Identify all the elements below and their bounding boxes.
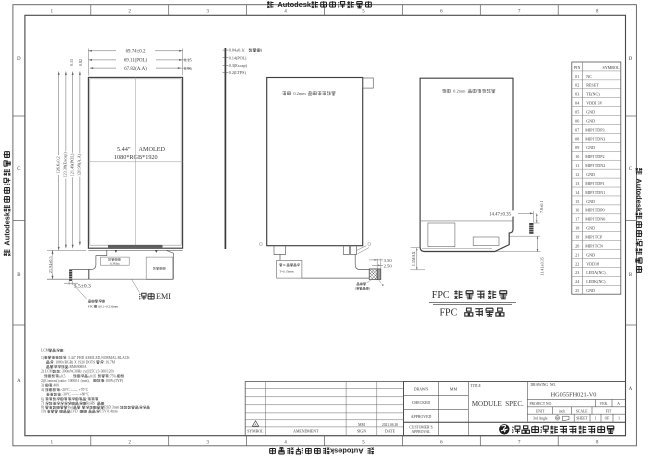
svg-text:1.5MAX: 1.5MAX — [411, 251, 416, 266]
svg-text:24: 24 — [575, 279, 579, 284]
svg-text:C: C — [629, 167, 632, 172]
svg-text:AMENDMENT: AMENDMENT — [293, 430, 319, 434]
svg-text:03: 03 — [575, 92, 579, 97]
svg-text:20: 20 — [575, 243, 579, 248]
svg-text::400: :400 — [53, 384, 60, 388]
svg-text:21: 21 — [575, 252, 579, 257]
svg-text:GND: GND — [586, 288, 595, 293]
svg-text:21.94±0.5: 21.94±0.5 — [48, 257, 53, 274]
svg-text:LVD: LVD — [71, 410, 78, 414]
svg-text:DATE: DATE — [385, 430, 396, 434]
svg-text:FPC: FPC — [440, 308, 458, 319]
svg-text:): ) — [369, 287, 370, 291]
svg-text:FIT: FIT — [606, 409, 612, 413]
svg-text:123.38(Excap): 123.38(Excap) — [63, 152, 68, 178]
svg-text:SHEET: SHEET — [576, 417, 588, 421]
svg-text:MIPI TDN3: MIPI TDN3 — [585, 136, 605, 141]
svg-text:DRAWN: DRAWN — [414, 387, 429, 391]
svg-text:MIPI TCP: MIPI TCP — [585, 235, 603, 240]
svg-text:IC: IC — [283, 263, 286, 267]
svg-text:02: 02 — [575, 83, 579, 88]
svg-text:0.15: 0.15 — [69, 59, 74, 66]
svg-text:121.49(POL): 121.49(POL) — [69, 153, 74, 176]
svg-text:2021.06.30: 2021.06.30 — [382, 423, 398, 427]
svg-text:MIPI TDP2: MIPI TDP2 — [585, 154, 604, 159]
svg-text:14: 14 — [575, 190, 579, 195]
svg-text:MIPI TDN0: MIPI TDN0 — [585, 217, 605, 222]
svg-text:3.5±0.3: 3.5±0.3 — [74, 284, 91, 290]
svg-text:MM: MM — [450, 386, 458, 391]
svg-text:GND: GND — [586, 252, 595, 257]
svg-text:SIGN: SIGN — [357, 430, 366, 434]
svg-text:14.47±0.35: 14.47±0.35 — [489, 212, 511, 217]
svg-text:SYMBOL: SYMBOL — [602, 65, 620, 70]
svg-text:(: ( — [355, 287, 356, 291]
svg-text:GND: GND — [586, 109, 595, 114]
svg-text:SCALE: SCALE — [576, 409, 588, 413]
svg-text:OF: OF — [605, 417, 610, 421]
svg-text:TE(NC): TE(NC) — [586, 92, 600, 97]
svg-text:11: 11 — [575, 163, 579, 168]
svg-text:LEDK(NC): LEDK(NC) — [586, 279, 606, 284]
svg-text::75%: :75% — [109, 374, 117, 378]
svg-text:D: D — [629, 57, 633, 62]
svg-text:CHECKED: CHECKED — [412, 401, 431, 405]
svg-text:GND: GND — [586, 145, 595, 150]
svg-text:1080*RGB*1920: 1080*RGB*1920 — [114, 154, 158, 161]
svg-text:69.11(POL): 69.11(POL) — [124, 59, 148, 64]
svg-text::-30°C —— +80°C: :-30°C —— +80°C — [61, 393, 90, 397]
svg-text:0.96: 0.96 — [184, 66, 192, 71]
svg-text:VDDI 3V: VDDI 3V — [586, 101, 602, 106]
svg-text:126.6±0.2: 126.6±0.2 — [55, 156, 60, 173]
svg-text::RM69080A: :RM69080A — [68, 365, 87, 369]
svg-text:NC: NC — [586, 74, 592, 79]
svg-text:13: 13 — [575, 181, 579, 186]
svg-text:22: 22 — [575, 261, 579, 266]
svg-text:0.5V 0.4mm: 0.5V 0.4mm — [100, 410, 118, 414]
svg-text:MIPI TCN: MIPI TCN — [585, 243, 603, 248]
svg-text:VER.: VER. — [600, 402, 608, 406]
svg-text:16: 16 — [575, 208, 579, 213]
svg-text:07: 07 — [575, 127, 579, 132]
svg-text:: 1080 (RGB) X 1920 DOTS: : 1080 (RGB) X 1920 DOTS — [53, 361, 95, 365]
svg-text:Autodesk: Autodesk — [634, 178, 643, 213]
svg-text:18: 18 — [575, 226, 579, 231]
svg-text:MODULE SPEC.: MODULE SPEC. — [472, 400, 524, 408]
svg-text:C: C — [17, 167, 20, 172]
svg-text:MM: MM — [358, 423, 365, 427]
svg-text:MIPI TDP0: MIPI TDP0 — [585, 208, 604, 213]
svg-text:120.98(A.A): 120.98(A.A) — [77, 153, 82, 176]
svg-text:19: 19 — [575, 235, 579, 240]
svg-text::: : — [86, 397, 87, 401]
svg-text:MIPI TDP3: MIPI TDP3 — [585, 127, 604, 132]
svg-text:DRAWING NO.: DRAWING NO. — [531, 383, 557, 387]
svg-text:MIPI TDN2: MIPI TDN2 — [585, 163, 605, 168]
svg-text:0.82: 0.82 — [78, 59, 83, 66]
svg-text:Autodesk: Autodesk — [329, 446, 364, 455]
svg-text:7.8±0.1: 7.8±0.1 — [539, 201, 544, 213]
svg-text:MIPI TDN1: MIPI TDN1 — [585, 190, 605, 195]
svg-text::-20°C —— +70°C: :-20°C —— +70°C — [60, 388, 89, 392]
svg-text:0.3(Excap): 0.3(Excap) — [229, 63, 248, 68]
svg-text:67.82(A.A): 67.82(A.A) — [124, 67, 147, 72]
svg-text:T=0.15mm: T=0.15mm — [279, 270, 294, 274]
svg-text:: 16.7M: : 16.7M — [104, 361, 116, 365]
svg-text:UNIT: UNIT — [536, 409, 546, 413]
svg-text:06: 06 — [575, 118, 579, 123]
svg-text:23: 23 — [575, 270, 579, 275]
svg-text:25: 25 — [575, 288, 579, 293]
svg-text:15: 15 — [575, 199, 579, 204]
svg-text:PIN: PIN — [574, 65, 581, 70]
svg-text:2.50: 2.50 — [384, 263, 393, 268]
svg-text:0.04±0.1(: 0.04±0.1( — [229, 48, 246, 53]
svg-text:12: 12 — [575, 172, 579, 177]
svg-text:FPC: FPC — [432, 290, 450, 301]
svg-text:APPROVAL: APPROVAL — [412, 430, 432, 434]
svg-text:01: 01 — [575, 74, 579, 79]
svg-text:inch: inch — [559, 409, 566, 413]
svg-text:RoHS: RoHS — [86, 402, 95, 406]
svg-text:MIPI TDP1: MIPI TDP1 — [585, 181, 604, 186]
svg-text:5.44”: 5.44” — [117, 146, 131, 153]
svg-text:69.74±0.2: 69.74±0.2 — [126, 50, 146, 55]
svg-text:±0.5: ±0.5 — [59, 374, 66, 378]
svg-text:05: 05 — [575, 109, 579, 114]
svg-text:FPC: FPC — [88, 305, 95, 309]
svg-text:LCM: LCM — [41, 349, 50, 353]
svg-text:08: 08 — [575, 136, 579, 141]
svg-text:0.2(LTPS): 0.2(LTPS) — [229, 70, 247, 75]
svg-text:0.14(POL): 0.14(POL) — [229, 55, 247, 60]
svg-text:PROJECT NO: PROJECT NO — [530, 402, 552, 406]
svg-text:EMI: EMI — [156, 292, 171, 301]
svg-text:B: B — [629, 273, 632, 278]
svg-text:3rd Angle: 3rd Angle — [533, 417, 548, 421]
svg-text:R: R — [382, 283, 384, 287]
svg-text:APPROVED: APPROVED — [411, 415, 432, 419]
svg-text:TITLE: TITLE — [471, 384, 482, 388]
svg-text:2) LCM: 2) LCM — [41, 370, 53, 374]
svg-text:AMOLED: AMOLED — [139, 146, 166, 153]
svg-text:04: 04 — [575, 101, 579, 106]
svg-text:D: D — [17, 57, 21, 62]
svg-text:A: A — [617, 402, 620, 406]
svg-text:GND: GND — [586, 172, 595, 177]
svg-text:0.2mm: 0.2mm — [293, 91, 306, 96]
svg-text:11.41±0.35: 11.41±0.35 — [540, 257, 545, 275]
svg-text:Autodesk: Autodesk — [3, 211, 12, 246]
svg-text:09: 09 — [575, 145, 579, 150]
svg-text:3.50: 3.50 — [384, 258, 393, 263]
svg-text:B: B — [17, 273, 20, 278]
svg-text:GND: GND — [586, 118, 595, 123]
svg-text:A: A — [17, 379, 21, 384]
svg-text:1: 1 — [618, 417, 620, 421]
svg-text:CUSTOMER’S: CUSTOMER’S — [409, 425, 432, 429]
svg-text::: : — [64, 349, 65, 353]
svg-text:VDD18: VDD18 — [586, 261, 599, 266]
svg-text:HG055FH021-V0: HG055FH021-V0 — [551, 391, 597, 398]
svg-text:10: 10 — [575, 154, 579, 159]
svg-text:1: 1 — [595, 417, 597, 421]
svg-text:SYMBOL: SYMBOL — [247, 430, 264, 434]
svg-text:±0.05: ±0.05 — [88, 374, 96, 378]
svg-text:Autodesk: Autodesk — [277, 0, 312, 9]
svg-text:10): 10) — [41, 410, 47, 414]
svg-text:0.2mm: 0.2mm — [453, 89, 466, 94]
svg-text:0.15: 0.15 — [184, 58, 192, 63]
svg-text:LEDA(NC): LEDA(NC) — [586, 270, 606, 275]
svg-text:RESET: RESET — [586, 83, 599, 88]
svg-text:GND: GND — [586, 199, 595, 204]
svg-text::100%(TYP): :100%(TYP) — [104, 379, 123, 383]
svg-text:17: 17 — [575, 217, 579, 222]
svg-text:GND: GND — [586, 226, 595, 231]
svg-text:0.3Max: 0.3Max — [110, 261, 120, 265]
svg-text:A: A — [629, 387, 633, 392]
svg-text:t(0.1~0.23)mm: t(0.1~0.23)mm — [98, 305, 118, 309]
